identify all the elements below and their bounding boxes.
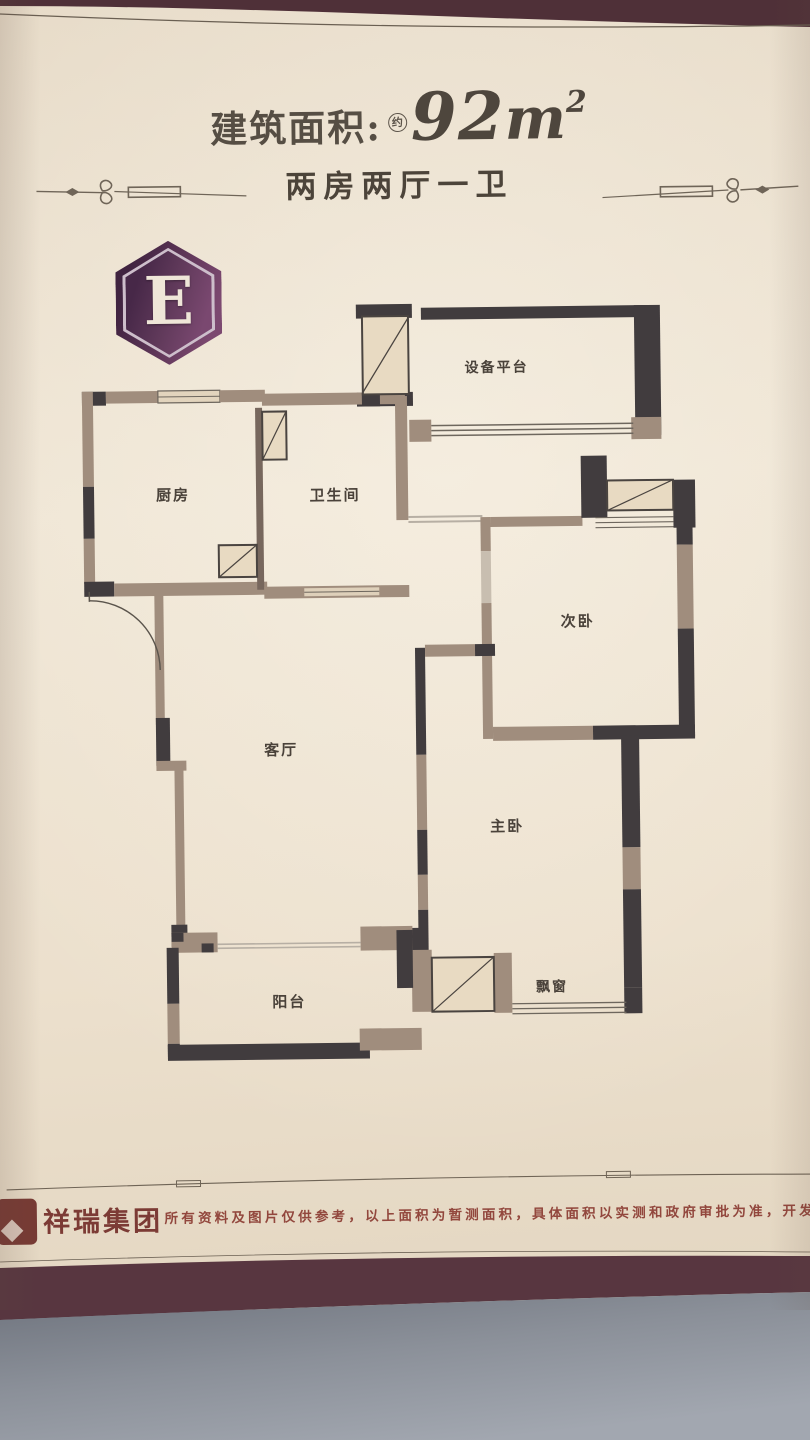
header: 建筑面积: 约 92 m 2: [0, 73, 804, 163]
area-superscript: 2: [566, 85, 587, 120]
room-label-equipment-platform: 设备平台: [464, 356, 528, 377]
window-icon: [362, 316, 409, 395]
window-icon: [607, 480, 673, 511]
approx-circle-mark: 约: [388, 113, 407, 132]
photo-of-floorplan-page: { "header": { "title_label": "建筑面积:", "a…: [0, 0, 810, 1440]
footer-divider-line: [6, 1165, 810, 1197]
area-value: 92: [410, 77, 505, 156]
room-label-bathroom: 卫生间: [309, 484, 360, 506]
room-label-living-room: 客厅: [264, 739, 298, 760]
walls-layer-4: [154, 589, 643, 1061]
page-bottom-edge: [0, 1230, 810, 1440]
room-label-master-bedroom: 主卧: [490, 815, 524, 836]
right-flourish-ornament: [602, 173, 802, 215]
room-label-balcony: 阳台: [272, 991, 306, 1012]
room-label-bay-window: 飘窗: [536, 976, 568, 996]
page-subtitle: 两房两厅一卫: [285, 159, 514, 207]
disclaimer-bullet: ·: [153, 1211, 161, 1226]
door-panel-icon: [219, 545, 257, 577]
floor-plan: 设备平台 厨房 卫生间 次卧 客厅 主卧 阳台 飘窗: [56, 296, 715, 1074]
entry-door-arc-icon: [89, 591, 160, 671]
page-top-edge: [0, 0, 810, 60]
area-unit: m: [504, 84, 566, 153]
room-label-kitchen: 厨房: [156, 484, 190, 505]
title-label: 建筑面积:: [210, 91, 383, 165]
disclaimer-text: 所有资料及图片仅供参考，以上面积为暂测面积，具体面积以实测和政府审批为准，开发商…: [165, 1202, 810, 1226]
page-content: 建筑面积: 约 92 m 2 两房两厅一卫 E: [0, 0, 810, 1315]
footer-disclaimer: ·所有资料及图片仅供参考，以上面积为暂测面积，具体面积以实测和政府审批为准，开发…: [153, 1201, 810, 1229]
page-title: 建筑面积: 约 92 m 2: [210, 76, 588, 166]
door-panel-icon: [262, 411, 287, 459]
floor-plan-drawing: [56, 296, 715, 1074]
window-icon: [432, 957, 495, 1012]
left-flourish-ornament: [36, 172, 246, 215]
room-label-second-bedroom: 次卧: [561, 610, 595, 631]
